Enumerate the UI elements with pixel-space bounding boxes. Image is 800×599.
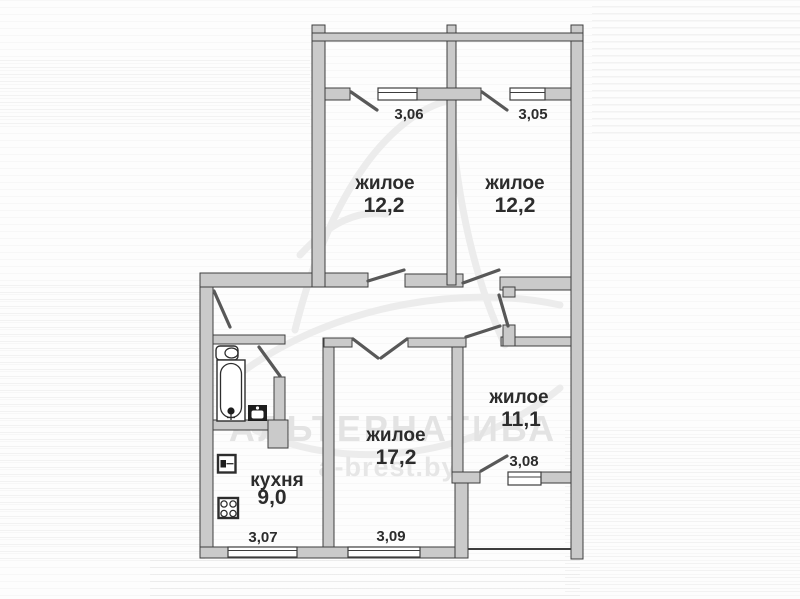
kitchen-sink-icon xyxy=(218,455,236,473)
toilet-icon xyxy=(216,346,238,360)
room-area: 17,2 xyxy=(376,446,417,469)
living-room-door-leaf-left xyxy=(353,339,378,358)
window-bedroom-3-balcony xyxy=(508,472,541,485)
floor-plan-sheet: АЛЬТЕРНАТИВА a-brest.by xyxy=(0,0,800,599)
door-leaf-bedroom-3 xyxy=(466,326,500,337)
dimension-label: 3,06 xyxy=(394,106,423,123)
window-kitchen xyxy=(228,547,297,557)
room-area: 11,1 xyxy=(501,408,541,431)
room-label-living-room: жилое 17,2 3,09 xyxy=(365,425,425,545)
balcony-door-leaf-bedroom-2 xyxy=(482,92,507,110)
room-name: жилое xyxy=(365,425,425,446)
wall-segment xyxy=(268,420,288,448)
dimension-label: 3,07 xyxy=(248,529,277,546)
room-name: жилое xyxy=(488,387,548,408)
room-area: 9,0 xyxy=(257,486,286,509)
floor-plan-svg: АЛЬТЕРНАТИВА a-brest.by xyxy=(0,0,800,599)
wall-segment xyxy=(274,377,285,420)
living-room-door-leaf-right xyxy=(381,339,407,358)
wall-segment xyxy=(417,88,481,100)
wall-segment xyxy=(213,335,285,344)
window-bedroom-2 xyxy=(510,88,545,100)
dimension-label: 3,05 xyxy=(518,106,547,123)
stove-icon xyxy=(219,498,239,518)
bathtub-icon xyxy=(217,360,245,421)
wall-segment xyxy=(541,472,571,483)
room-area: 12,2 xyxy=(495,194,536,217)
dimension-label: 3,09 xyxy=(376,528,405,545)
room-label-bedroom-2: жилое 12,2 3,05 xyxy=(484,106,547,217)
wall-segment xyxy=(455,483,468,558)
closet-stub-wall xyxy=(503,287,515,297)
room-label-kitchen: кухня 9,0 3,07 xyxy=(248,470,303,546)
watermark-logo-curve xyxy=(450,100,505,345)
closet-stub-wall xyxy=(503,325,515,346)
loggia-front-wall xyxy=(312,33,583,41)
wall-segment xyxy=(447,25,456,285)
wall-segment xyxy=(312,25,325,287)
room-area: 12,2 xyxy=(364,194,405,217)
room-name: жилое xyxy=(354,173,414,194)
entry-door-leaf xyxy=(214,291,230,327)
wall-segment xyxy=(200,273,213,558)
room-name: жилое xyxy=(484,173,544,194)
door-leaf-bedroom-1 xyxy=(368,270,404,281)
wall-segment xyxy=(325,88,350,100)
wall-segment xyxy=(408,338,466,347)
dimension-label: 3,08 xyxy=(509,453,538,470)
window-living-room xyxy=(348,547,420,557)
wall-segment xyxy=(545,88,571,100)
balcony-door-leaf-bedroom-1 xyxy=(351,92,377,110)
window-bedroom-1 xyxy=(378,88,417,100)
balcony-door-leaf-bedroom-3 xyxy=(481,456,507,471)
wall-segment xyxy=(200,273,368,287)
wall-segment xyxy=(452,338,463,483)
washbasin-icon xyxy=(248,405,267,421)
wall-segment xyxy=(323,338,334,547)
wall-segment xyxy=(324,338,352,347)
wall-segment xyxy=(571,25,583,559)
wall-segment xyxy=(452,472,480,483)
